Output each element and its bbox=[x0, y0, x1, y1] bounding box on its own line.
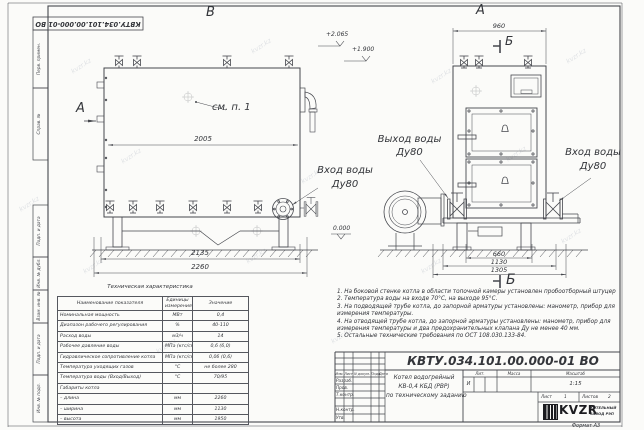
spec-table-title: Техническая характеристика bbox=[60, 284, 240, 290]
section-b-label-top: Б bbox=[505, 34, 513, 48]
note-item: 4. На отводящей трубе котла, до запорной… bbox=[337, 319, 625, 334]
mass-header: Масса bbox=[497, 371, 531, 376]
technical-notes: 1. На боковой стенке котла в области топ… bbox=[337, 289, 625, 341]
drawing-sheet: kvzr.kz kvzr.kz kvzr.kz kvzr.kz kvzr.kz … bbox=[0, 0, 644, 430]
strip-label-vzam-inv: Взам. инв. № bbox=[37, 291, 42, 321]
spec-table: Наименование показателя Единицыизмерения… bbox=[57, 296, 249, 425]
note-item: 2. Температура воды на входе 70°С, на вы… bbox=[337, 296, 625, 303]
spec-cell-name: Гидравлическое сопротивление котла bbox=[58, 352, 163, 362]
doc-number-rotated: КВТУ.034.101.00.000-01 ВО bbox=[33, 17, 143, 30]
view-arrow-a-label: А bbox=[76, 101, 96, 116]
spec-cell-value: 14 bbox=[193, 331, 249, 341]
spec-row: Диапазон рабочего регулирования%40-110 bbox=[58, 321, 249, 331]
spec-header-row: Наименование показателя Единицыизмерения… bbox=[58, 297, 249, 311]
scale-header: Масштаб bbox=[531, 371, 620, 376]
spec-row: Габариты котла bbox=[58, 383, 249, 393]
spec-col-units-line1: Единицы bbox=[166, 298, 188, 303]
spec-cell-value: 0,06 (0,6) bbox=[193, 352, 249, 362]
spec-cell-value: 0,6 (6,0) bbox=[193, 342, 249, 352]
water-outlet-dn-label: Ду80 bbox=[362, 147, 457, 158]
water-outlet-label: Выход воды bbox=[362, 134, 457, 145]
spec-cell-value bbox=[193, 383, 249, 393]
section-b-label-bottom: Б bbox=[506, 272, 516, 288]
elevation-2065: +2.065 bbox=[326, 31, 348, 38]
spec-row: – высотамм1950 bbox=[58, 414, 249, 424]
spec-row: – ширинамм1130 bbox=[58, 404, 249, 414]
sheet-label: Лист bbox=[541, 395, 552, 400]
spec-cell-value: 1950 bbox=[193, 414, 249, 424]
rev-header-ndocum: N докум. bbox=[353, 372, 371, 376]
strip-label-inv-dubl: Инв. № дубл. bbox=[37, 258, 42, 288]
spec-cell-name: Номинальная мощность bbox=[58, 311, 163, 321]
spec-cell-name: Температура уходящих газов bbox=[58, 362, 163, 372]
spec-cell-units: м3/ч bbox=[163, 331, 193, 341]
spec-col-units: Единицыизмерения bbox=[163, 297, 193, 311]
water-inlet-right-dn-label: Ду80 bbox=[548, 161, 638, 172]
note-item: 3. На подводящей трубе котла, до запорно… bbox=[337, 304, 625, 319]
water-inlet-left-dn-label: Ду80 bbox=[300, 179, 390, 190]
doc-number: КВТУ.034.101.00.000-01 ВО bbox=[387, 352, 619, 370]
spec-cell-units: мм bbox=[163, 414, 193, 424]
spec-cell-units: °С bbox=[163, 362, 193, 372]
spec-cell-name: – ширина bbox=[58, 404, 163, 414]
product-title-line3: по техническому заданию bbox=[386, 393, 462, 399]
spec-row: Номинальная мощностьМВт0,4 bbox=[58, 311, 249, 321]
callout-see-item: см. п. 1 bbox=[212, 102, 251, 113]
spec-row: Рабочее давление водыМПа (кгс/см2)0,6 (6… bbox=[58, 342, 249, 352]
spec-cell-value: 2260 bbox=[193, 394, 249, 404]
format-label: Формат А3 bbox=[556, 423, 616, 429]
spec-cell-units: °С bbox=[163, 373, 193, 383]
dim-660: 660 bbox=[476, 250, 522, 258]
dim-2005: 2005 bbox=[160, 135, 246, 143]
lit-value: И bbox=[463, 381, 474, 387]
spec-cell-name: – длина bbox=[58, 394, 163, 404]
spec-cell-name: Рабочее давление воды bbox=[58, 342, 163, 352]
rev-row-razrab: Разраб. bbox=[336, 378, 352, 383]
sheet-value: 1 bbox=[564, 395, 567, 400]
spec-cell-units: мм bbox=[163, 394, 193, 404]
spec-cell-name: Расход воды bbox=[58, 331, 163, 341]
view-b-drawing bbox=[97, 56, 318, 250]
spec-cell-units: % bbox=[163, 321, 193, 331]
dim-2135: 2135 bbox=[157, 249, 243, 257]
spec-cell-name: Габариты котла bbox=[58, 383, 163, 393]
spec-row: Температура воды (Вход/Выход)°С70/95 bbox=[58, 373, 249, 383]
rev-header-data: Дата bbox=[379, 372, 385, 376]
spec-cell-units: МВт bbox=[163, 311, 193, 321]
strip-label-podp-data-1: Подп. и дата bbox=[37, 207, 42, 255]
product-title-line2: КВ-0,4 КБД (РВР) bbox=[386, 384, 462, 390]
spec-cell-name: Диапазон рабочего регулирования bbox=[58, 321, 163, 331]
rev-header-podp: Подп. bbox=[371, 372, 379, 376]
strip-label-inv-podl: Инв. № подл. bbox=[37, 376, 42, 420]
spec-cell-units: мм bbox=[163, 404, 193, 414]
spec-cell-value: 70/95 bbox=[193, 373, 249, 383]
strip-label-podp-data-2: Подп. и дата bbox=[37, 325, 42, 373]
spec-col-name: Наименование показателя bbox=[58, 297, 163, 311]
spec-col-units-line2: измерения bbox=[165, 304, 192, 309]
dim-960: 960 bbox=[476, 22, 522, 30]
spec-cell-name: Температура воды (Вход/Выход) bbox=[58, 373, 163, 383]
rev-row-prov: Пров. bbox=[336, 385, 348, 390]
spec-cell-value: 40-110 bbox=[193, 321, 249, 331]
note-item: 1. На боковой стенке котла в области топ… bbox=[337, 289, 625, 296]
lit-header: Лит. bbox=[463, 371, 497, 376]
elevation-1900: +1.900 bbox=[352, 46, 374, 53]
dim-2260: 2260 bbox=[157, 263, 243, 271]
scale-value: 1:15 bbox=[531, 381, 620, 387]
water-inlet-left-label: Вход воды bbox=[300, 165, 390, 176]
spec-row: – длинамм2260 bbox=[58, 394, 249, 404]
strip-label-sprav-no: Справ. № bbox=[37, 92, 42, 156]
spec-cell-value: 0,4 bbox=[193, 311, 249, 321]
kvzr-logo-icon bbox=[543, 404, 558, 420]
dim-1130: 1130 bbox=[474, 258, 524, 266]
rev-row-tkontr: Т.контр. bbox=[336, 392, 354, 397]
sheets-label: Листов bbox=[582, 395, 598, 400]
spec-cell-units bbox=[163, 383, 193, 393]
spec-row: Гидравлическое сопротивление котлаМПа (к… bbox=[58, 352, 249, 362]
rev-row-utv: Утв. bbox=[336, 415, 345, 420]
rev-header-list: Лист bbox=[344, 372, 353, 376]
spec-cell-value: не более 280 bbox=[193, 362, 249, 372]
spec-cell-name: – высота bbox=[58, 414, 163, 424]
spec-cell-value: 1130 bbox=[193, 404, 249, 414]
elevation-zero: 0.000 bbox=[333, 225, 350, 232]
spec-cell-units: МПа (кгс/см2) bbox=[163, 352, 193, 362]
org-name-line2: ЗАВОД РЭП bbox=[590, 412, 614, 416]
view-b-label: В bbox=[206, 5, 230, 20]
product-title-line1: Котел водогрейный bbox=[386, 375, 462, 381]
sheets-value: 2 bbox=[608, 395, 611, 400]
note-item: 5. Остальные технические требования по О… bbox=[337, 333, 625, 340]
org-name-line1: КОТЕЛЬНЫЙ bbox=[590, 406, 616, 410]
spec-col-value: Значение bbox=[193, 297, 249, 311]
rev-row-nkontr: Н.контр. bbox=[336, 407, 355, 412]
spec-cell-units: МПа (кгс/см2) bbox=[163, 342, 193, 352]
rev-header-izm: Изм. bbox=[335, 372, 344, 376]
dim-1305: 1305 bbox=[472, 266, 526, 274]
spec-row: Температура уходящих газов°Сне более 280 bbox=[58, 362, 249, 372]
view-a-label: А bbox=[476, 3, 500, 18]
water-inlet-right-label: Вход воды bbox=[548, 147, 638, 158]
strip-label-perv-primen: Перв. примен. bbox=[37, 32, 42, 86]
spec-row: Расход водым3/ч14 bbox=[58, 331, 249, 341]
